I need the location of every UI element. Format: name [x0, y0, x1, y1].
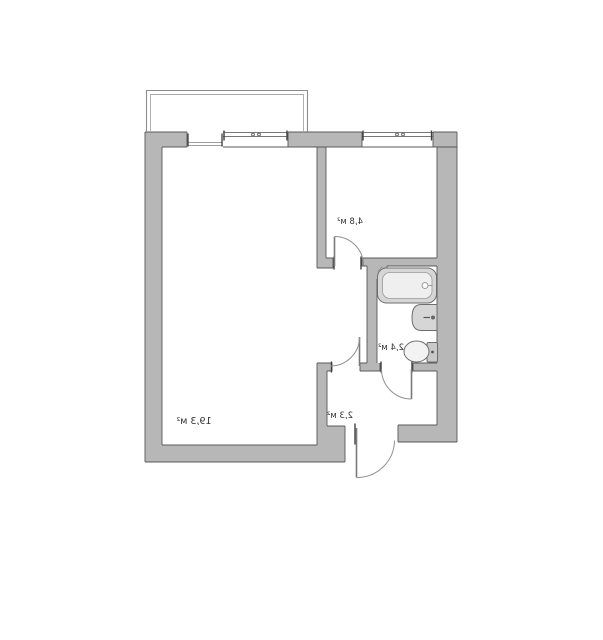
room-label-bathroom: 2,4 м²: [378, 343, 404, 353]
room-label-living-room: 19,3 м²: [176, 416, 211, 427]
door-entrance: [357, 428, 395, 478]
balcony-outline: [147, 91, 308, 133]
window-living-room-icon: [223, 133, 288, 137]
sink-icon: [412, 305, 437, 331]
door-swing-arc: [331, 337, 360, 366]
door-bedroom: [335, 237, 364, 267]
balcony-door-icon: [187, 134, 223, 147]
room-label-hallway: 2,3 м²: [327, 411, 353, 421]
room-label-bedroom: 4,8 м²: [337, 217, 363, 227]
door-bathroom: [382, 369, 412, 399]
floor-plan-page: 19,3 м² 4,8 м² 2,4 м² 2,3 м²: [0, 0, 603, 640]
door-living-room: [331, 337, 360, 366]
door-swing-arc: [382, 369, 412, 399]
bathtub-icon: [378, 268, 437, 303]
toilet-icon: [404, 341, 438, 362]
floor-plan-drawing: 19,3 м² 4,8 м² 2,4 м² 2,3 м²: [0, 0, 603, 640]
door-swing-arc: [357, 441, 395, 478]
door-swing-arc: [335, 237, 364, 266]
